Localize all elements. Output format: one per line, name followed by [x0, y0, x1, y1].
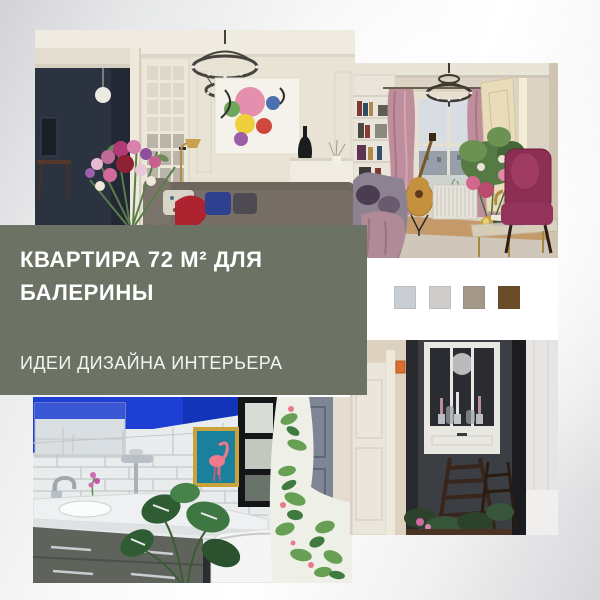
lamp-reflection	[451, 353, 473, 375]
abstract-painting	[215, 78, 300, 154]
hallway-illustration	[350, 340, 558, 535]
bathroom-blue-flamingo-photo	[33, 397, 352, 583]
title-line-2: БАЛЕРИНЫ	[20, 276, 263, 309]
palette-swatch-light-gray	[429, 286, 451, 309]
glass-cabinet	[424, 342, 500, 454]
palette-swatch-brown	[498, 286, 520, 309]
living-room-chandelier-photo	[35, 30, 355, 225]
collage-canvas: КВАРТИРА 72 М² ДЛЯ БАЛЕРИНЫ ИДЕИ ДИЗАЙНА…	[0, 0, 600, 600]
palette-swatch-taupe	[463, 286, 485, 309]
bathroom-illustration	[33, 397, 352, 583]
title-band: КВАРТИРА 72 М² ДЛЯ БАЛЕРИНЫ ИДЕИ ДИЗАЙНА…	[0, 225, 367, 395]
flamingo-artwork	[193, 427, 239, 487]
orange-switch	[396, 361, 405, 373]
palette-swatch-light-blue-gray	[394, 286, 416, 309]
hallway-dark-dining-photo	[350, 340, 558, 535]
color-palette-card	[367, 258, 558, 340]
globe-pendant-lamp	[95, 87, 111, 103]
mirror	[35, 403, 125, 457]
lounge-pink-curtains-photo	[353, 63, 558, 258]
post-title: КВАРТИРА 72 М² ДЛЯ БАЛЕРИНЫ	[20, 243, 263, 309]
lounge-illustration	[353, 63, 558, 258]
title-line-1: КВАРТИРА 72 М² ДЛЯ	[20, 243, 263, 276]
radiator	[433, 185, 477, 219]
post-subtitle: ИДЕИ ДИЗАЙНА ИНТЕРЬЕРА	[20, 353, 282, 374]
living-room-illustration	[35, 30, 355, 225]
